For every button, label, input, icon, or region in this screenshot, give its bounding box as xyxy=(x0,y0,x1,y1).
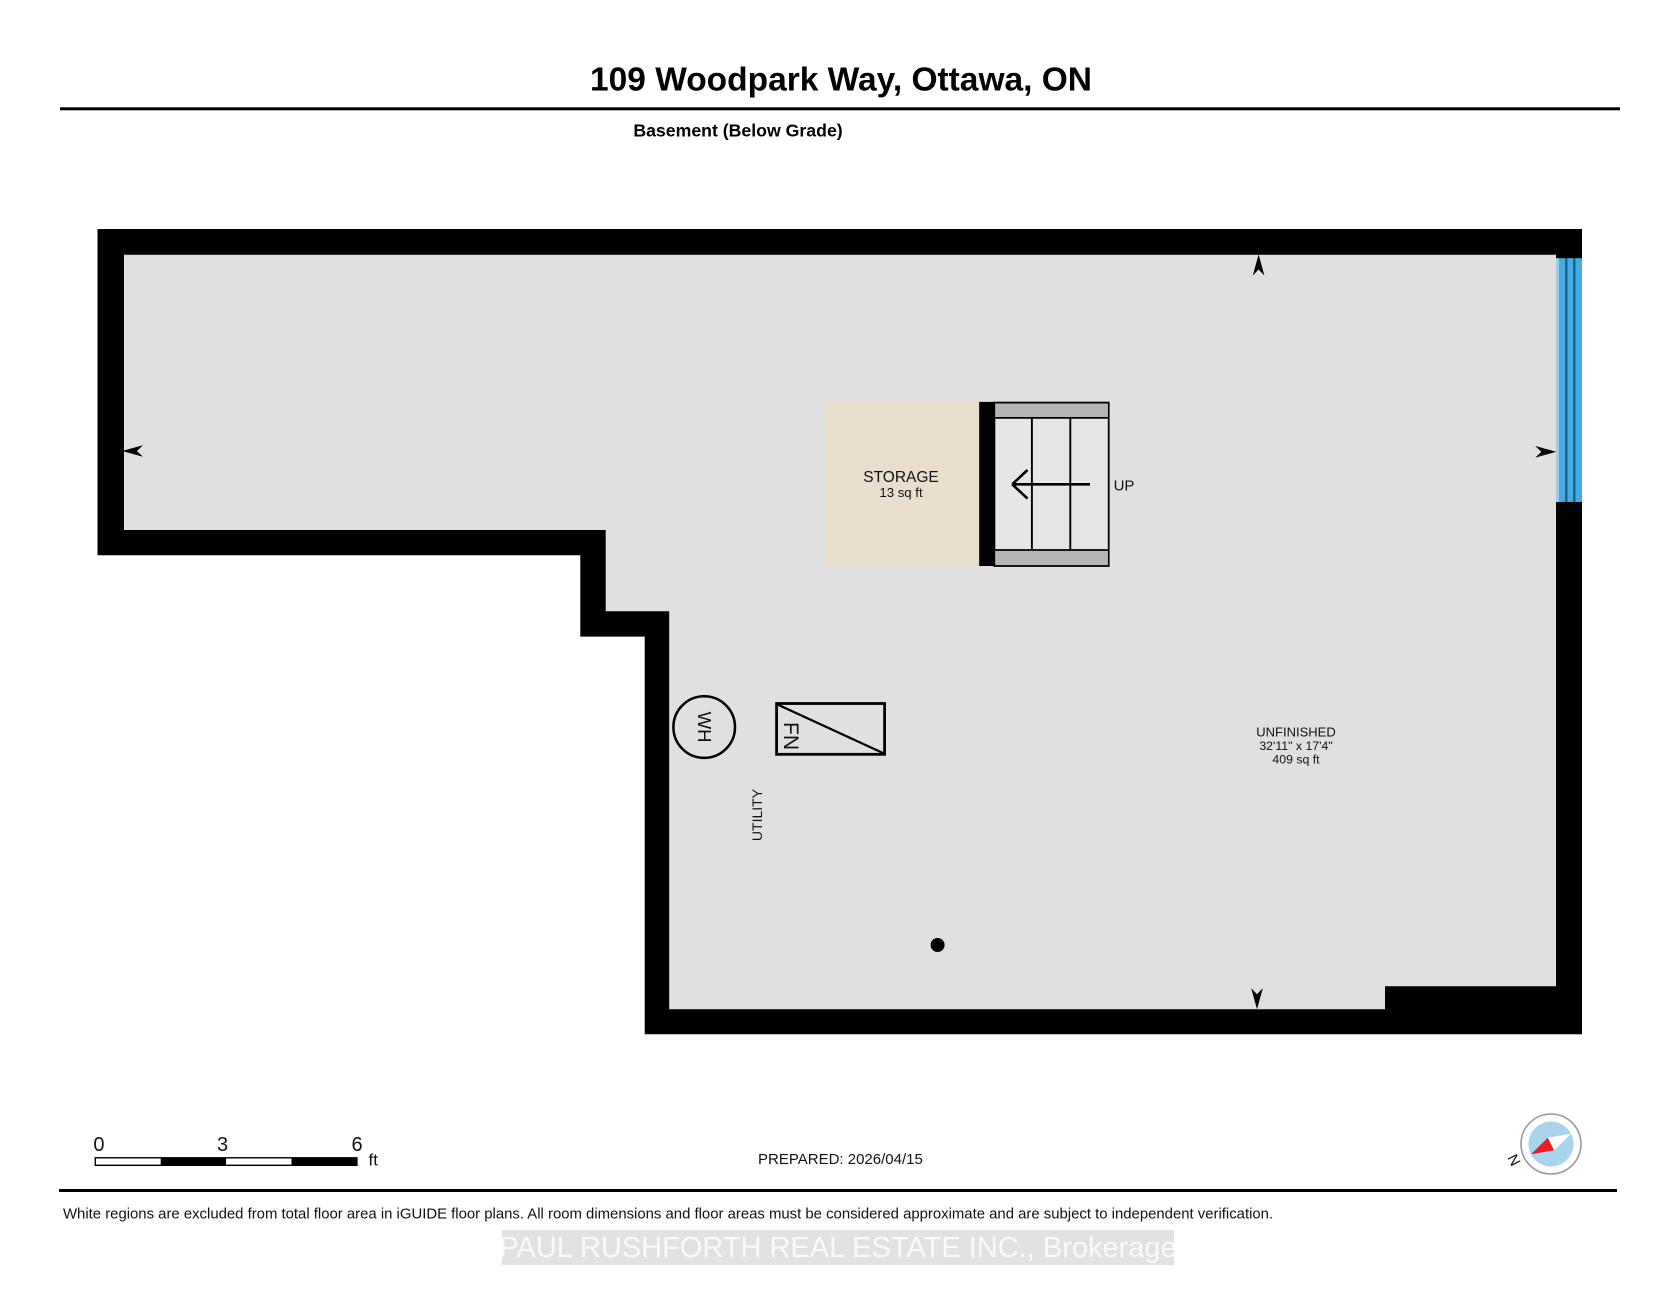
svg-text:13 sq ft: 13 sq ft xyxy=(879,485,923,500)
svg-text:UNFINISHED: UNFINISHED xyxy=(1256,724,1335,739)
svg-text:STORAGE: STORAGE xyxy=(863,469,939,486)
svg-text:White regions are excluded fro: White regions are excluded from total fl… xyxy=(63,1207,1273,1223)
svg-text:PREPARED: 2026/04/15: PREPARED: 2026/04/15 xyxy=(758,1151,923,1168)
svg-text:WH: WH xyxy=(694,712,715,743)
svg-text:109 Woodpark Way, Ottawa, ON: 109 Woodpark Way, Ottawa, ON xyxy=(590,62,1092,99)
svg-text:409 sq ft: 409 sq ft xyxy=(1272,753,1320,767)
svg-text:32'11" x 17'4": 32'11" x 17'4" xyxy=(1259,739,1332,753)
svg-text:0: 0 xyxy=(93,1134,104,1156)
svg-text:UTILITY: UTILITY xyxy=(749,788,765,841)
svg-text:PAUL RUSHFORTH REAL ESTATE INC: PAUL RUSHFORTH REAL ESTATE INC., Brokera… xyxy=(499,1232,1176,1264)
svg-text:Basement (Below Grade): Basement (Below Grade) xyxy=(633,121,842,141)
svg-text:UP: UP xyxy=(1114,478,1135,495)
svg-text:ft: ft xyxy=(369,1151,379,1170)
svg-text:FN: FN xyxy=(779,722,802,750)
svg-text:3: 3 xyxy=(217,1134,228,1156)
svg-text:6: 6 xyxy=(351,1134,362,1156)
